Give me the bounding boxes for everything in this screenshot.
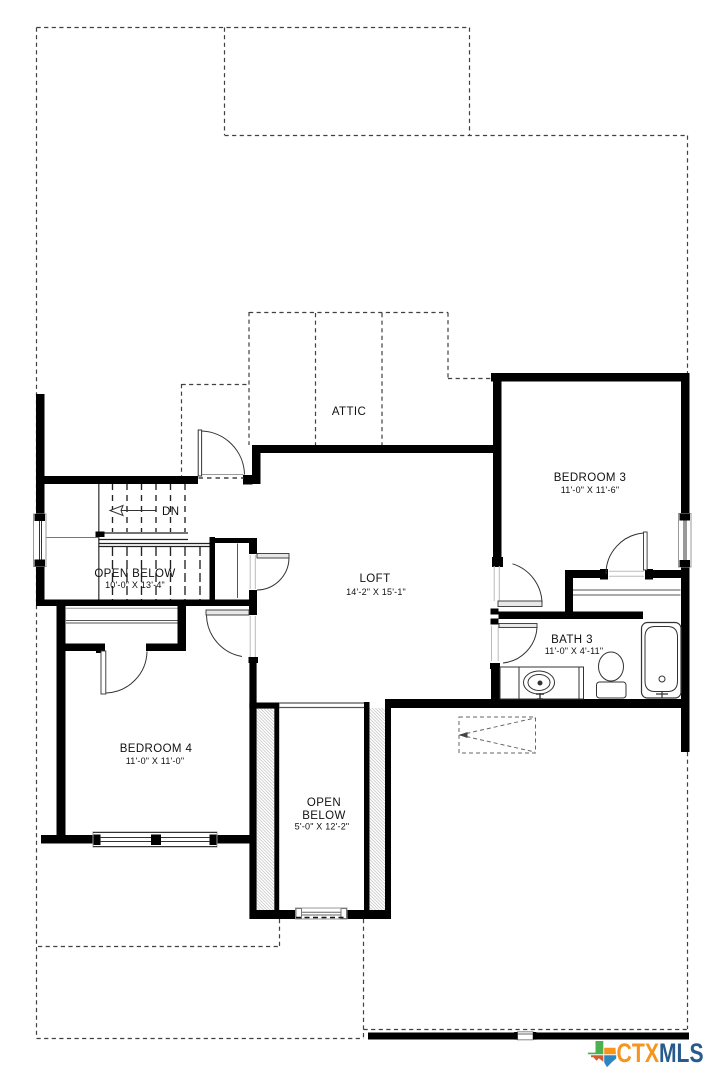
- svg-text:10'-0" X 13'-4": 10'-0" X 13'-4": [105, 580, 165, 590]
- svg-text:5'-0" X 12'-2": 5'-0" X 12'-2": [295, 822, 350, 832]
- svg-text:BELOW: BELOW: [302, 810, 346, 822]
- svg-text:OPEN: OPEN: [307, 797, 341, 809]
- svg-text:BEDROOM 4: BEDROOM 4: [120, 743, 193, 755]
- svg-text:BEDROOM 3: BEDROOM 3: [554, 472, 627, 484]
- svg-text:11'-0" X 4'-11": 11'-0" X 4'-11": [545, 646, 604, 656]
- svg-text:OPEN BELOW: OPEN BELOW: [94, 568, 175, 580]
- svg-text:11'-0" X 11'-0": 11'-0" X 11'-0": [126, 756, 185, 766]
- svg-text:CTX: CTX: [617, 1038, 660, 1068]
- svg-text:ATTIC: ATTIC: [332, 406, 366, 418]
- svg-text:14'-2" X 15'-1": 14'-2" X 15'-1": [346, 587, 406, 597]
- svg-text:BATH 3: BATH 3: [551, 634, 593, 646]
- svg-text:11'-0" X 11'-6": 11'-0" X 11'-6": [561, 485, 620, 495]
- svg-text:DN: DN: [162, 506, 179, 518]
- svg-text:MLS: MLS: [659, 1038, 704, 1068]
- svg-text:LOFT: LOFT: [360, 573, 391, 585]
